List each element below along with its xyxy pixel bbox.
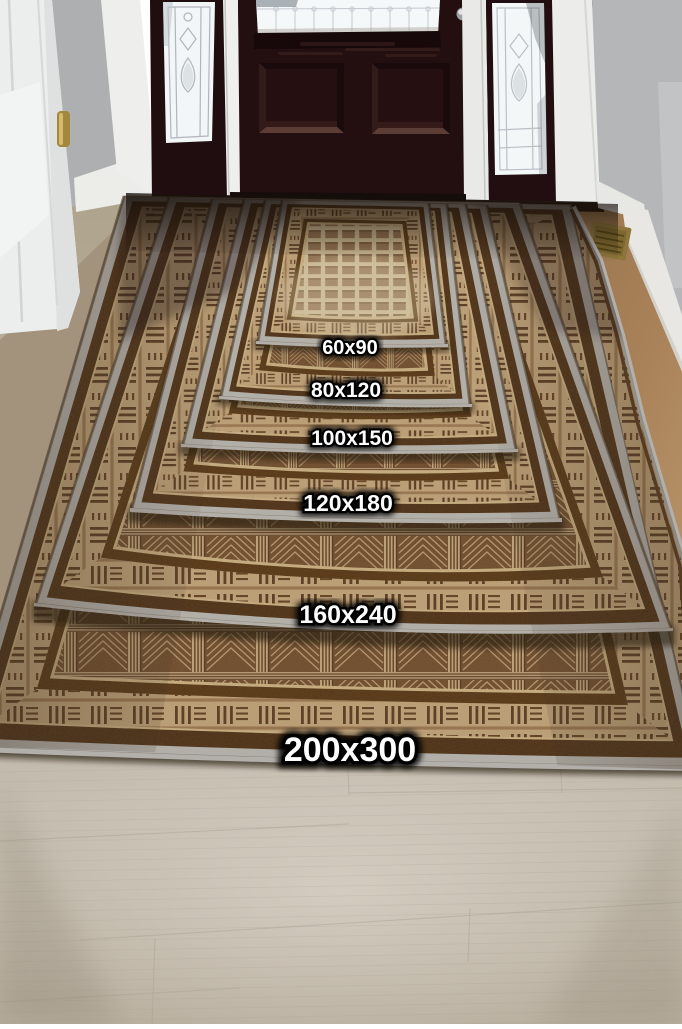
svg-text:200x300: 200x300 (284, 731, 416, 769)
svg-text:160x240: 160x240 (299, 601, 396, 629)
svg-text:100x150: 100x150 (311, 427, 393, 450)
svg-text:80x120: 80x120 (311, 379, 381, 402)
svg-text:60x90: 60x90 (322, 337, 378, 359)
svg-text:120x180: 120x180 (303, 490, 393, 516)
